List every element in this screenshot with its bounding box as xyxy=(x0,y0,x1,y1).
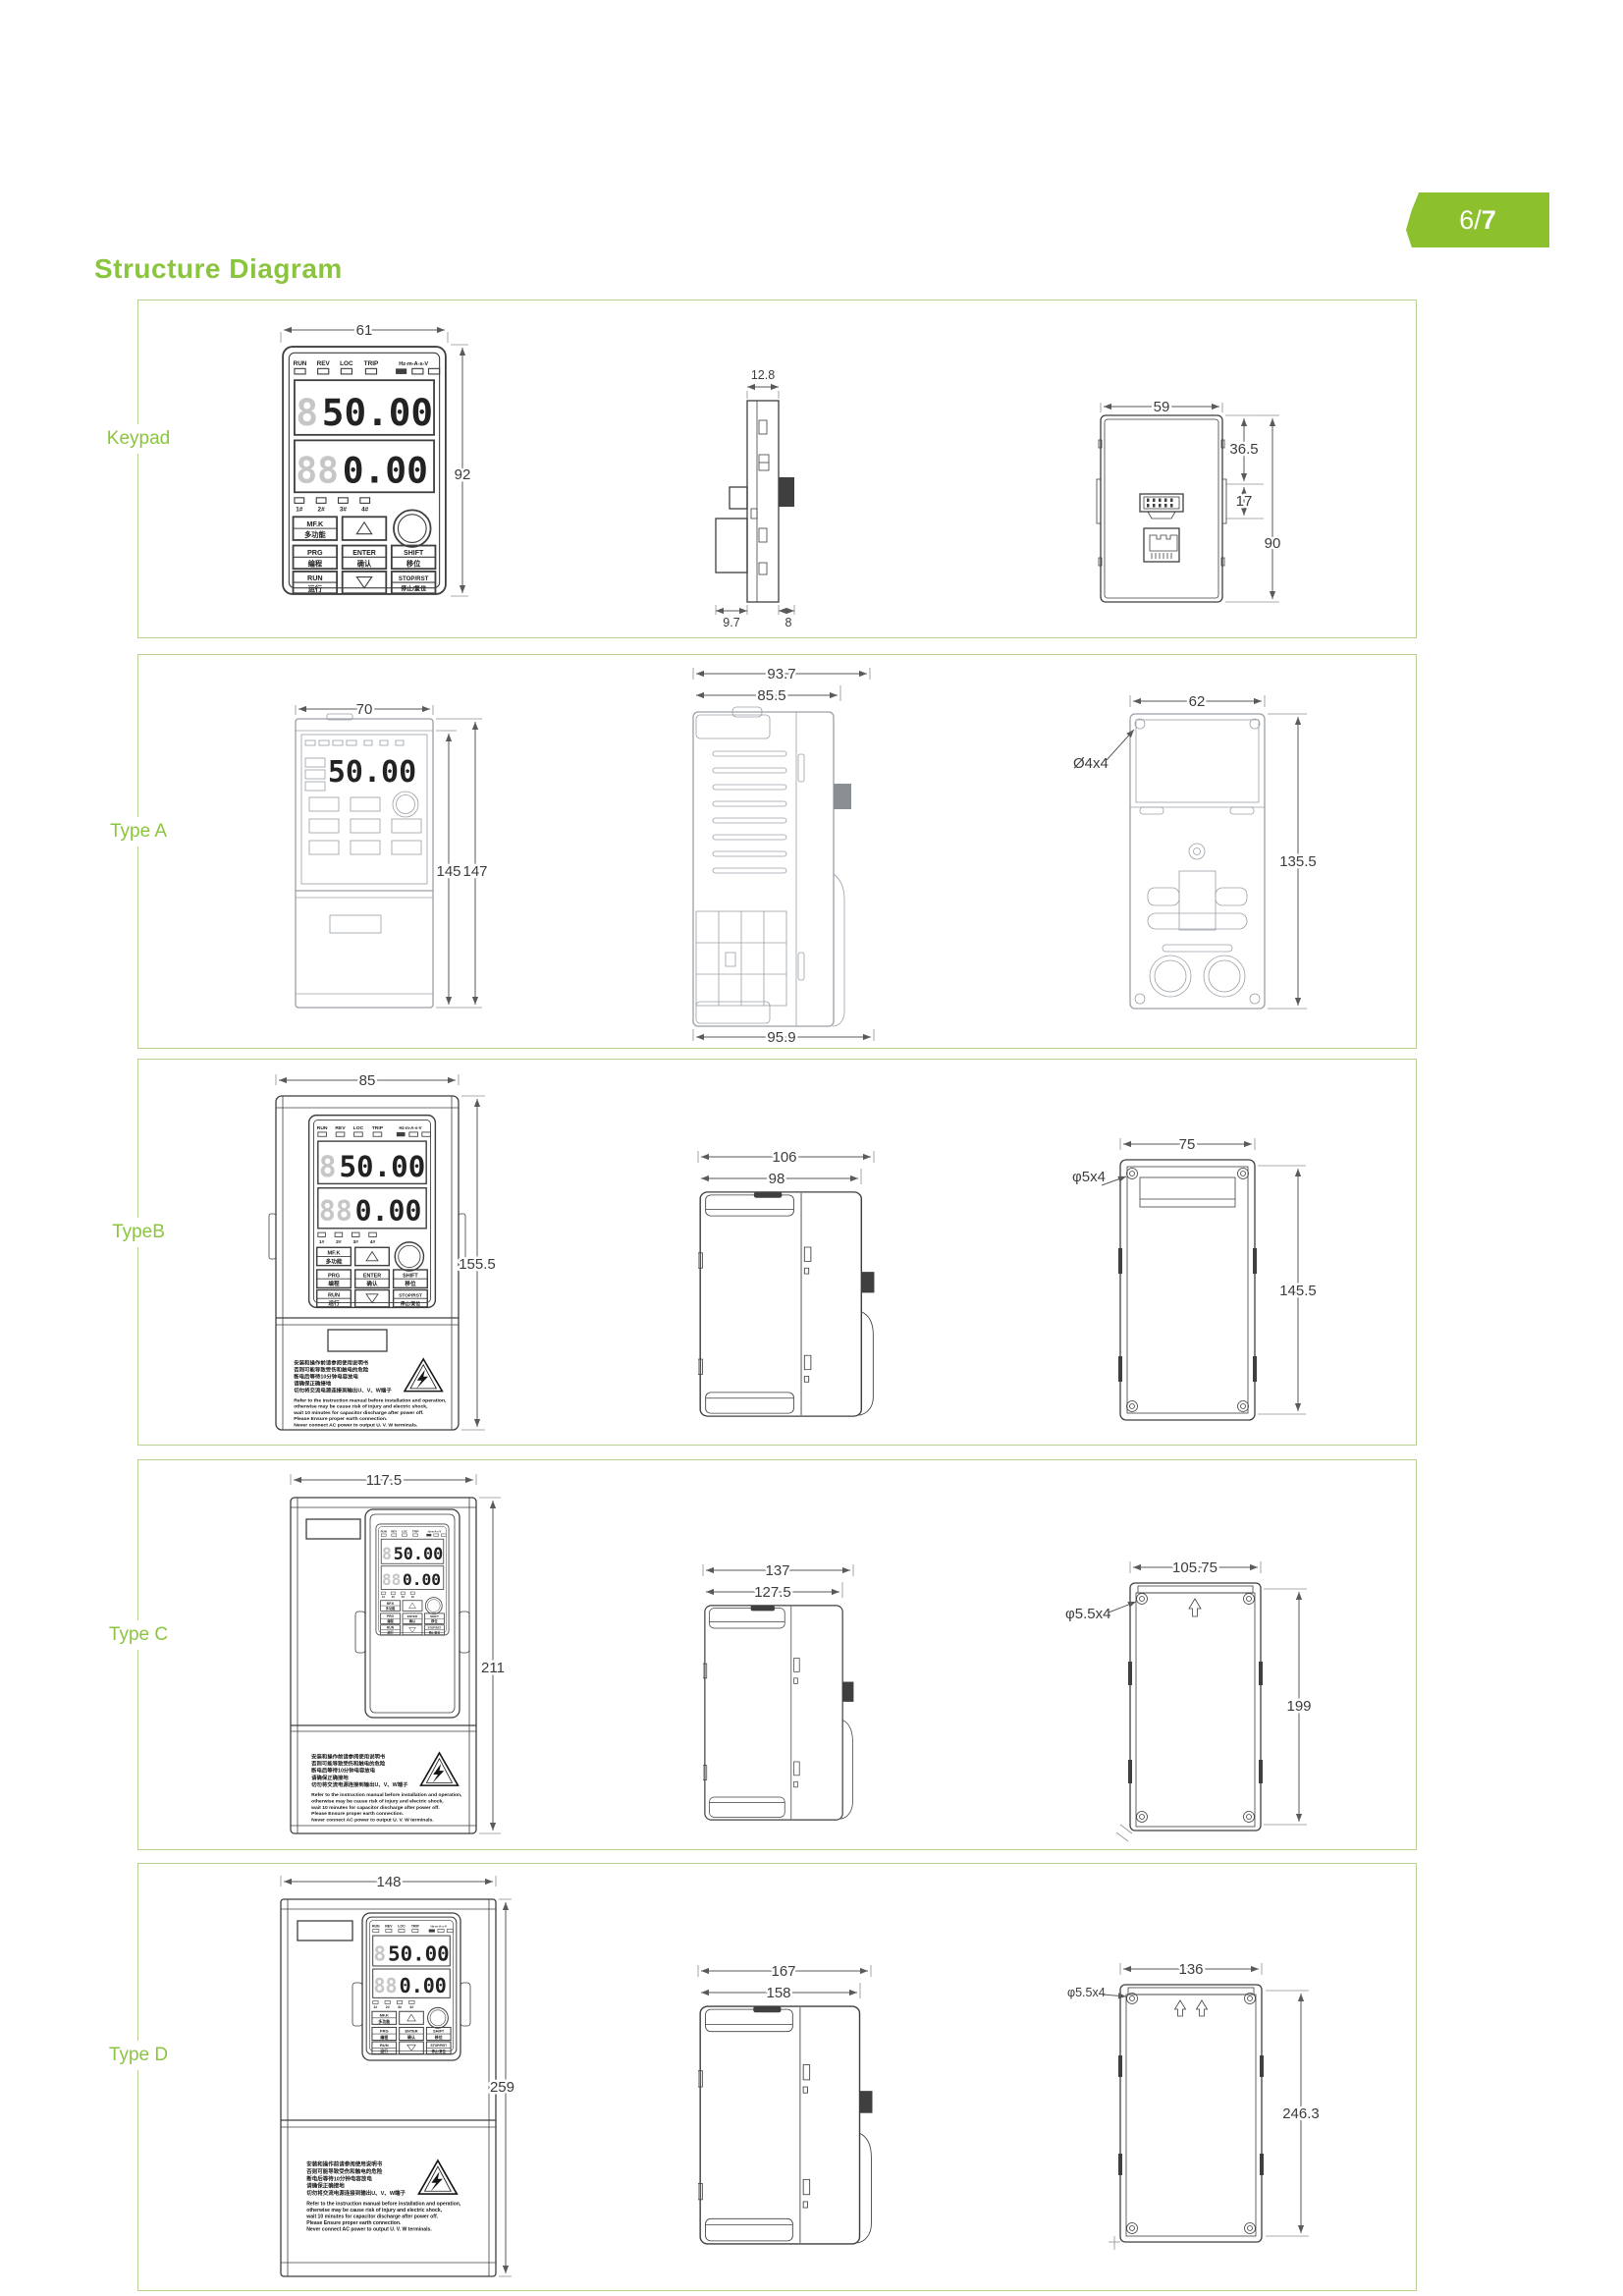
type-c-side-view: 137 127.5 xyxy=(674,1557,880,1836)
row-label: Type D xyxy=(101,2041,176,2070)
rib-grid xyxy=(1126,1995,1256,2236)
side-profile-use xyxy=(698,2006,873,2244)
nameplate xyxy=(298,1921,352,1941)
type-c-back-view: 105.75 φ5.5x4 199 xyxy=(1061,1554,1341,1843)
dim-back-width: 105.75 xyxy=(1172,1559,1217,1576)
warning-label-use xyxy=(293,1358,447,1428)
dim-side-depth-bottom: 95.9 xyxy=(767,1029,795,1046)
knob-side-icon xyxy=(779,477,794,507)
dim-back-upper: 36.5 xyxy=(1229,441,1258,458)
keypad-side-view: 12.8 9.7 8 xyxy=(678,361,855,622)
dim-front-width: 61 xyxy=(356,322,373,339)
mounting-holes xyxy=(1127,1994,1256,2234)
keypad-front-view: 61 92 xyxy=(227,310,482,629)
dim-front-height: 147 xyxy=(462,863,487,880)
dim-back-height: 145.5 xyxy=(1279,1283,1317,1299)
terminal-cover-flange xyxy=(833,874,844,1026)
panel-type-c: Type C 117.5 211 137 127.5 xyxy=(137,1459,1417,1850)
dim-side-depth: 93.7 xyxy=(767,666,795,683)
dim-front-height: 211 xyxy=(481,1660,505,1676)
dim-back-height: 199 xyxy=(1286,1698,1311,1715)
keypad-face-use xyxy=(366,1917,457,2054)
dim-back-holes: φ5.5x4 xyxy=(1067,1986,1106,1999)
rib-grid xyxy=(1127,1167,1248,1413)
row-label: Keypad xyxy=(99,424,178,454)
dim-back-height: 135.5 xyxy=(1279,853,1317,870)
dim-side-depth-inner: 85.5 xyxy=(757,687,785,704)
type-d-side-view: 167 158 xyxy=(674,1957,894,2257)
type-a-front-view: 70 50.00 145 147 xyxy=(237,680,492,1033)
dim-side-top: 12.8 xyxy=(751,368,775,382)
panel-type-a: Type A 70 50.00 145 14 xyxy=(137,654,1417,1049)
nameplate xyxy=(306,1519,360,1539)
type-d-back-view: 136 φ5.5x4 246.3 xyxy=(1061,1957,1351,2257)
mounting-hole xyxy=(1250,719,1260,729)
pin-connector-icon xyxy=(1140,494,1183,519)
panel-keypad: Keypad 61 92 12.8 9.7 xyxy=(137,300,1417,638)
vent-slots xyxy=(713,751,786,873)
row-label: Type C xyxy=(101,1620,176,1650)
terminal-hatch xyxy=(696,911,786,1006)
type-a-side-view: 93.7 85.5 95.9 xyxy=(639,658,885,1046)
orientation-arrow-icon xyxy=(1197,2000,1208,2016)
dim-back-holes: φ5.5x4 xyxy=(1065,1606,1110,1622)
page-number-badge: 6/7 xyxy=(1406,192,1549,247)
dim-front-height-inner: 145 xyxy=(436,863,460,880)
dim-back-height: 90 xyxy=(1265,535,1281,552)
mounting-hole xyxy=(1135,994,1145,1004)
type-d-front-view: 148 259 xyxy=(246,1870,516,2287)
dim-back-holes: φ5x4 xyxy=(1072,1169,1106,1185)
knob-side-icon xyxy=(834,784,851,809)
vent-grid xyxy=(1136,720,1259,802)
dim-side-bottom-left: 9.7 xyxy=(723,616,739,629)
page-total: 7 xyxy=(1482,205,1496,236)
dim-side-depth: 106 xyxy=(772,1149,796,1166)
display-value: 50.00 xyxy=(328,755,416,790)
rib-grid xyxy=(1136,1593,1255,1827)
page-title: Structure Diagram xyxy=(94,253,343,285)
side-profile-use xyxy=(703,1606,853,1820)
mounting-holes xyxy=(1137,1594,1255,1823)
din-rail-clip xyxy=(1148,871,1247,952)
mounting-hole xyxy=(1250,994,1260,1004)
type-b-front-view: 85 155.5 xyxy=(232,1066,492,1440)
dim-front-width: 148 xyxy=(376,1874,401,1890)
warning-label-use xyxy=(305,2160,461,2233)
button-grid xyxy=(309,792,421,854)
warning-label-use xyxy=(310,1752,462,1823)
type-a-back-view: 62 Ø4x4 135.5 xyxy=(1061,670,1356,1038)
dim-back-height: 246.3 xyxy=(1282,2105,1320,2122)
dim-side-depth-inner: 127.5 xyxy=(754,1584,791,1601)
dim-side-depth-inner: 98 xyxy=(769,1171,785,1187)
type-c-front-view: 117.5 211 xyxy=(251,1468,507,1846)
rj45-port-icon xyxy=(1144,528,1179,562)
dim-front-height: 92 xyxy=(455,466,471,483)
dim-front-width: 85 xyxy=(359,1072,376,1089)
row-label: Type A xyxy=(102,817,175,847)
nameplate xyxy=(328,1330,387,1351)
panel-type-b: TypeB 85 155.5 106 98 xyxy=(137,1059,1417,1446)
mounting-holes xyxy=(1127,1169,1249,1412)
orientation-arrow-icon xyxy=(1175,2000,1186,2016)
dim-side-depth: 167 xyxy=(771,1963,795,1980)
orientation-arrow-icon xyxy=(1189,1599,1201,1616)
row-label: TypeB xyxy=(104,1218,173,1247)
dim-back-width: 59 xyxy=(1154,399,1170,415)
keypad-face-use xyxy=(283,347,446,594)
keypad-back-view: 59 36.5 17 9 xyxy=(1071,381,1317,612)
type-b-side-view: 106 98 xyxy=(659,1143,890,1433)
fan-openings xyxy=(1150,956,1245,997)
side-profile-use xyxy=(698,1192,874,1416)
type-b-back-view: 75 φ5x4 145.5 xyxy=(1066,1130,1331,1430)
dim-side-bottom-right: 8 xyxy=(785,616,792,629)
dim-side-depth: 137 xyxy=(765,1562,789,1579)
dim-front-width: 117.5 xyxy=(366,1472,402,1489)
dim-back-mid: 17 xyxy=(1236,493,1253,510)
dim-side-depth-inner: 158 xyxy=(766,1985,790,2001)
keypad-face-use xyxy=(309,1116,436,1308)
dim-front-height: 259 xyxy=(490,2079,514,2096)
page-number: 6/ xyxy=(1459,205,1482,236)
mounting-hole xyxy=(1135,719,1145,729)
keypad-face-use xyxy=(376,1524,449,1635)
dim-back-holes: Ø4x4 xyxy=(1073,755,1109,772)
dim-front-width: 70 xyxy=(356,701,373,718)
dim-back-width: 75 xyxy=(1179,1136,1196,1153)
dim-back-width: 62 xyxy=(1189,693,1206,710)
panel-type-d: Type D 148 259 167 158 xyxy=(137,1863,1417,2291)
dim-front-height: 155.5 xyxy=(459,1256,496,1273)
manual-page: 6/7 Structure Diagram Keypad 61 92 12.8 xyxy=(0,0,1623,2296)
dim-back-width: 136 xyxy=(1178,1961,1203,1978)
